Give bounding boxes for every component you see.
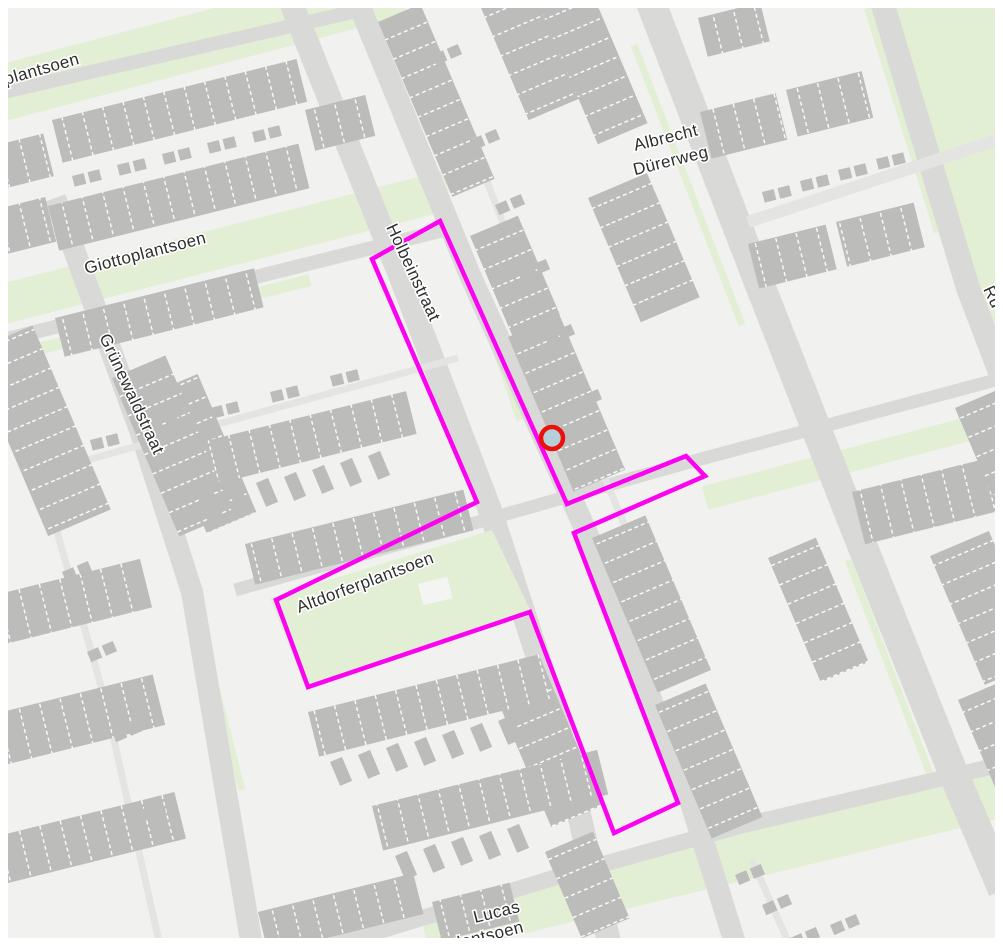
map-marker[interactable] xyxy=(541,427,563,449)
map-canvas[interactable]: iplantsoen Giottoplantsoen Grünewaldstra… xyxy=(0,0,1003,946)
map-svg: iplantsoen Giottoplantsoen Grünewaldstra… xyxy=(0,0,1003,946)
